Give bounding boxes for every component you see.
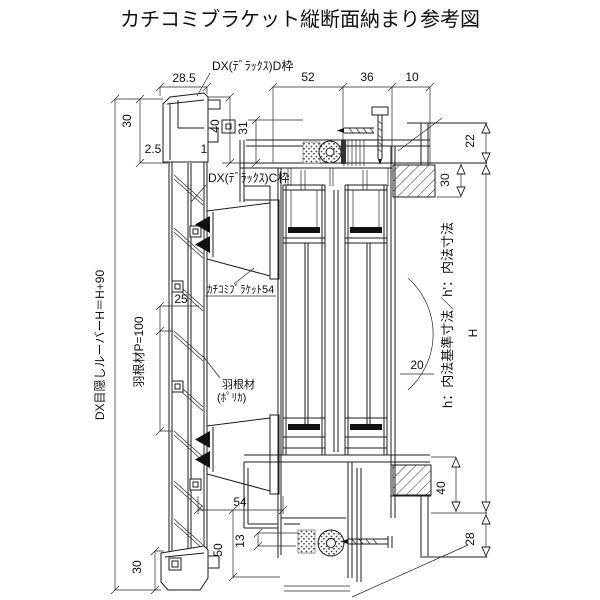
dim-25: 25 [174, 292, 188, 306]
dim-overall-H: H [466, 329, 480, 338]
label-blade-polyca: (ﾎﾟﾘｶ) [217, 391, 246, 404]
sealant-backer-bottom [298, 530, 344, 556]
dim-10: 10 [405, 70, 419, 84]
dim-1: 1 [201, 142, 208, 156]
dim-40-bottom-right: 40 [434, 481, 448, 495]
label-louver-height: DX目隠しルーバーH＝H+90 [93, 270, 107, 421]
dim-50: 50 [211, 543, 225, 557]
dim-28-5: 28.5 [172, 71, 196, 85]
head-frame [240, 118, 487, 202]
dim-20: 20 [410, 358, 424, 372]
sealant-stipple [303, 142, 320, 163]
label-blade-pitch: 羽根材P=100 [132, 316, 146, 387]
dim-52: 52 [301, 70, 315, 84]
label-blade-material: 羽根材 [222, 377, 255, 391]
dim-22: 22 [463, 134, 477, 148]
dim-30-bottom-left: 30 [130, 560, 144, 574]
dim-36: 36 [360, 70, 374, 84]
drawing-title: カチコミブラケット縦断面納まり参考図 [120, 7, 480, 31]
screw-bottom-horizontal [341, 536, 392, 548]
dim-54: 54 [233, 495, 247, 509]
louver-top-cap [163, 93, 235, 162]
technical-drawing: カチコミブラケット縦断面納まり参考図 [0, 0, 600, 600]
glazing-bead [288, 424, 320, 430]
glass-pane [305, 243, 308, 424]
glass-pane [367, 243, 370, 424]
blade-clips [172, 226, 201, 490]
gasket [341, 140, 346, 164]
kachikomi-bracket-upper [195, 200, 279, 279]
label-frame-c: DX(ﾃﾞﾗｯｸｽ)C枠 [208, 171, 289, 185]
dim-40-top-left: 40 [208, 119, 222, 133]
dim-28: 28 [463, 532, 477, 546]
sealant-stipple [298, 530, 315, 553]
sill-frame [244, 455, 487, 597]
dim-13: 13 [233, 534, 247, 548]
dim-2-5: 2.5 [145, 142, 162, 156]
label-inner-dim-note: h：内法基準寸法／h'：内法寸法 [440, 222, 455, 408]
wall-anchor-hatch-bottom [393, 465, 431, 495]
screw-top-horizontal [337, 128, 374, 133]
glazing-bead [350, 424, 382, 430]
drawing-page: カチコミブラケット縦断面納まり参考図 [0, 0, 600, 600]
dim-31: 31 [236, 121, 250, 135]
screw-top-vertical [372, 107, 388, 165]
dim-30-top-left: 30 [120, 114, 134, 128]
louver-assembly [161, 93, 235, 590]
glazing-bead [288, 227, 320, 233]
sash-section-right [345, 185, 387, 455]
glazing-bead [350, 227, 382, 233]
sealant-backer-top [303, 140, 346, 164]
dim-30-right: 30 [438, 173, 452, 187]
sash-section-left [283, 185, 325, 455]
label-bracket: ｶﾁｺﾐﾌﾞﾗｹｯﾄ54 [207, 283, 274, 296]
label-frame-d: DX(ﾃﾞﾗｯｸｽ)D枠 [212, 59, 293, 73]
